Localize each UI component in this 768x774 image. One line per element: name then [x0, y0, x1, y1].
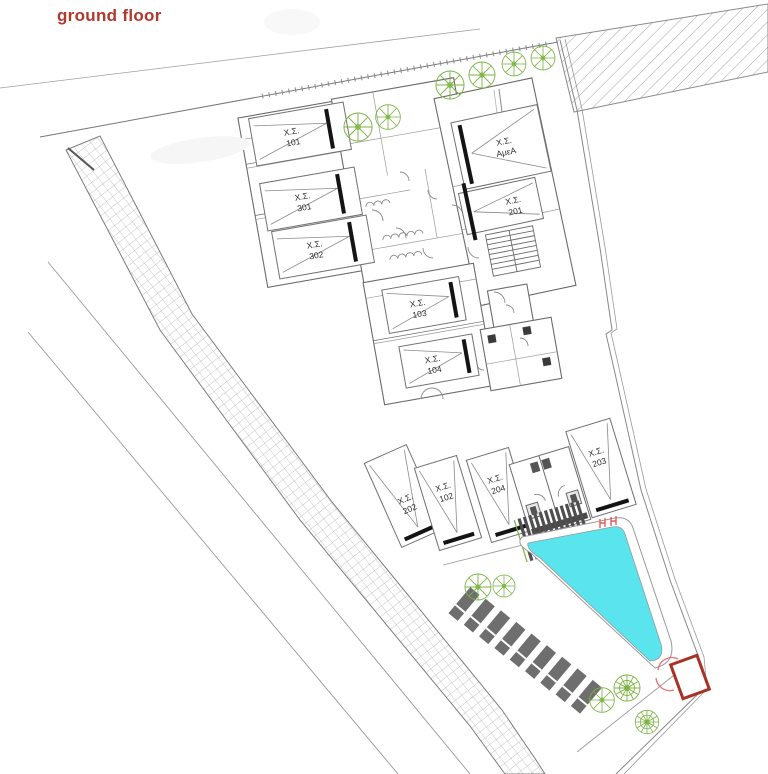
tree [493, 575, 515, 597]
page-title: ground floor [57, 6, 162, 26]
tree [502, 52, 526, 76]
gate-rect [671, 655, 710, 698]
tree [436, 71, 464, 99]
tree [465, 574, 491, 600]
whiteout-smudge [264, 9, 320, 35]
building-annex [480, 317, 562, 391]
pool [520, 516, 672, 668]
pool-water [528, 527, 662, 661]
street-line [0, 29, 480, 88]
neighbor-parcel-hatch [556, 4, 768, 112]
tree [376, 105, 401, 130]
floor-plan-page: Χ.Σ. 101 Χ.Σ. 301 Χ.Σ. 302 Χ. [0, 0, 768, 774]
floor-plan-drawing: Χ.Σ. 101 Χ.Σ. 301 Χ.Σ. 302 Χ. [0, 0, 768, 774]
whiteout-smudge [149, 131, 251, 169]
tree [469, 62, 495, 88]
tree [344, 113, 372, 141]
tree [531, 46, 555, 70]
tree [614, 675, 640, 701]
tree [635, 710, 658, 733]
tree [590, 688, 615, 713]
staircase [485, 226, 540, 276]
